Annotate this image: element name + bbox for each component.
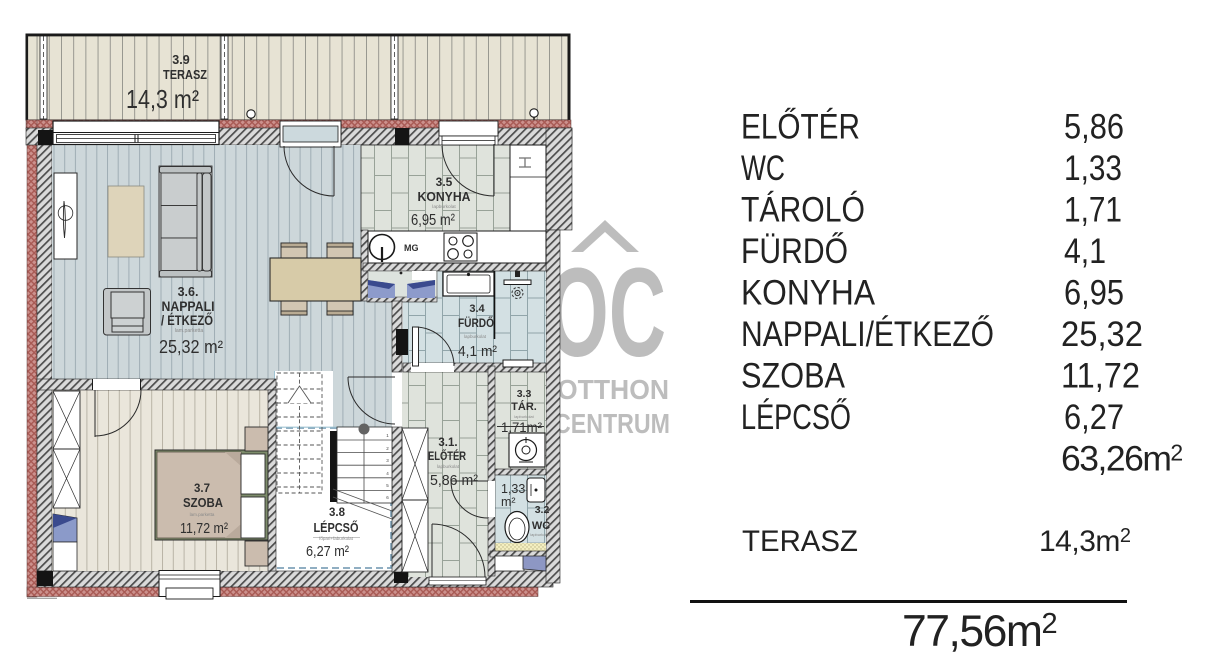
svg-text:63,26m2: 63,26m2: [1061, 439, 1182, 479]
svg-text:főpari+faburkolat: főpari+faburkolat: [319, 536, 353, 541]
svg-text:/ ÉTKEZŐ: / ÉTKEZŐ: [161, 313, 213, 328]
svg-text:ELŐTÉR: ELŐTÉR: [741, 107, 860, 147]
svg-text:CENTRUM: CENTRUM: [554, 408, 670, 439]
svg-text:TERASZ: TERASZ: [163, 67, 207, 82]
svg-text:OTTHON: OTTHON: [557, 374, 669, 405]
svg-text:5,86 m²: 5,86 m²: [430, 472, 478, 489]
svg-text:lam.parketta: lam.parketta: [190, 512, 215, 517]
svg-text:3.7: 3.7: [194, 483, 210, 495]
svg-text:m²: m²: [501, 495, 516, 509]
svg-text:FÜRDŐ: FÜRDŐ: [458, 315, 494, 330]
svg-text:lapburkolat: lapburkolat: [464, 334, 487, 339]
svg-text:TERASZ: TERASZ: [742, 525, 858, 558]
svg-text:LÉPCSŐ: LÉPCSŐ: [741, 397, 851, 437]
svg-text:6,27 m²: 6,27 m²: [306, 543, 349, 560]
svg-text:3.3: 3.3: [517, 388, 532, 400]
svg-text:SZOBA: SZOBA: [183, 496, 223, 510]
svg-text:3.1.: 3.1.: [438, 437, 457, 449]
svg-text:14,3 m²: 14,3 m²: [126, 84, 199, 114]
svg-text:3.4: 3.4: [469, 303, 485, 315]
svg-text:1,71m²: 1,71m²: [501, 420, 542, 435]
svg-text:WC: WC: [741, 148, 785, 188]
svg-text:3.9: 3.9: [172, 53, 189, 67]
svg-text:KONYHA: KONYHA: [418, 189, 472, 204]
svg-text:3.2: 3.2: [535, 504, 550, 516]
svg-text:MG: MG: [404, 243, 419, 253]
svg-text:11,72 m²: 11,72 m²: [180, 520, 228, 537]
svg-text:6,27: 6,27: [1064, 397, 1124, 437]
svg-text:FÜRDŐ: FÜRDŐ: [741, 231, 848, 271]
svg-text:3.6.: 3.6.: [178, 285, 199, 299]
svg-text:5,86: 5,86: [1064, 107, 1124, 147]
svg-text:lam.parketta: lam.parketta: [175, 328, 204, 334]
svg-text:SZOBA: SZOBA: [741, 356, 845, 396]
svg-text:25,32: 25,32: [1061, 314, 1143, 354]
svg-text:3.5: 3.5: [436, 175, 453, 189]
svg-text:1,33: 1,33: [501, 482, 525, 496]
svg-text:NAPPALI: NAPPALI: [162, 299, 215, 314]
svg-text:ELŐTÉR: ELŐTÉR: [428, 448, 466, 463]
svg-text:TÁROLÓ: TÁROLÓ: [741, 190, 865, 230]
svg-text:OC: OC: [547, 244, 666, 384]
svg-text:WC: WC: [532, 520, 550, 532]
svg-text:1,71: 1,71: [1064, 190, 1122, 230]
svg-text:TÁR.: TÁR.: [511, 400, 537, 413]
svg-text:lapburkolat: lapburkolat: [530, 532, 550, 537]
svg-text:14,3m2: 14,3m2: [1039, 525, 1131, 558]
svg-text:lapburkolat: lapburkolat: [514, 414, 534, 419]
svg-text:25,32 m²: 25,32 m²: [159, 337, 223, 357]
svg-text:4,1 m²: 4,1 m²: [458, 343, 497, 360]
svg-text:lapburkolat: lapburkolat: [437, 464, 460, 469]
svg-text:4,1: 4,1: [1064, 231, 1106, 271]
svg-text:6,95: 6,95: [1064, 273, 1124, 313]
svg-text:11,72: 11,72: [1061, 356, 1140, 396]
svg-text:77,56m2: 77,56m2: [902, 607, 1056, 656]
svg-text:LÉPCSŐ: LÉPCSŐ: [314, 520, 359, 535]
svg-text:6,95 m²: 6,95 m²: [411, 212, 456, 229]
svg-text:1,33: 1,33: [1064, 148, 1122, 188]
svg-text:NAPPALI/ÉTKEZŐ: NAPPALI/ÉTKEZŐ: [741, 314, 994, 354]
svg-text:lapburkolat: lapburkolat: [432, 204, 456, 210]
svg-text:3.8: 3.8: [329, 507, 346, 519]
svg-text:KONYHA: KONYHA: [741, 273, 875, 313]
